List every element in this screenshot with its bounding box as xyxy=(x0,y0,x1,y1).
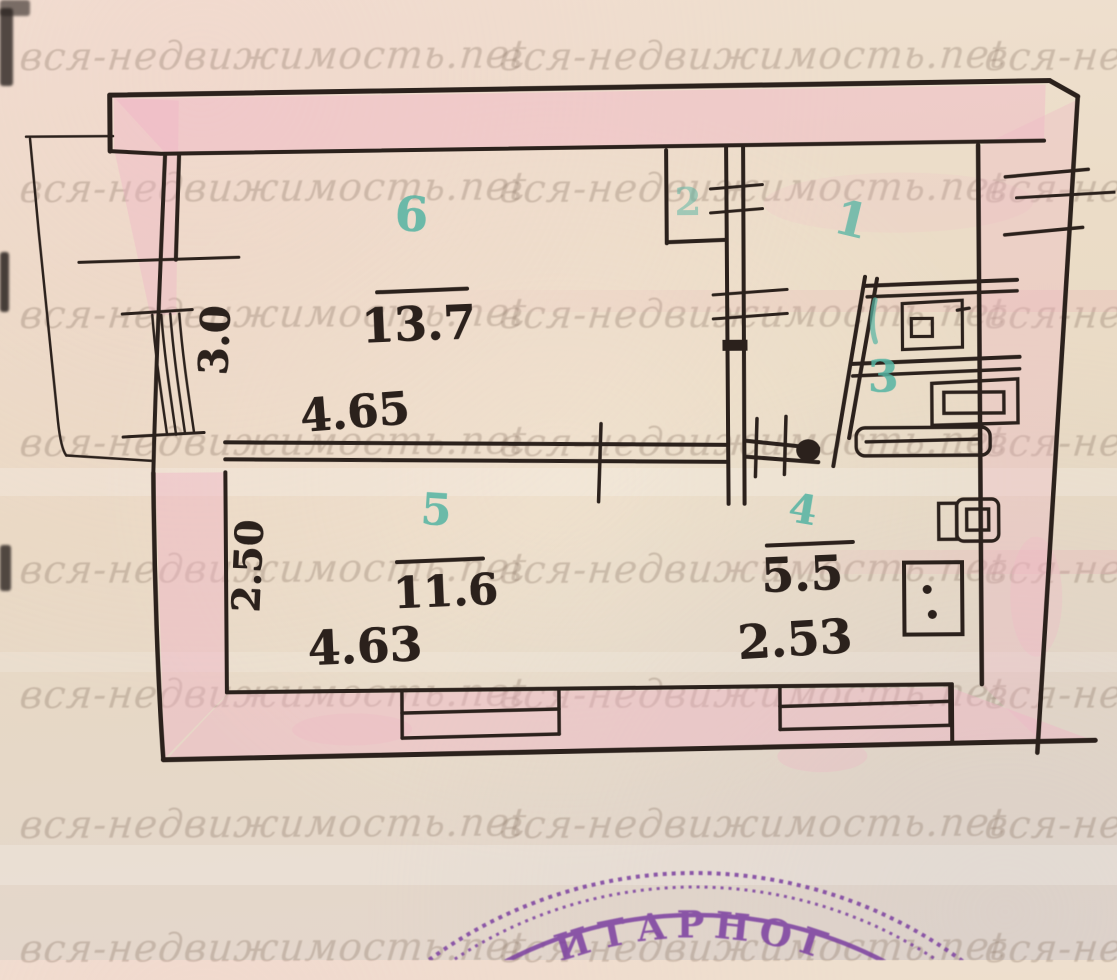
watermark-row: вся-недвижимость.net вся-недвижимость.ne… xyxy=(0,420,1117,474)
watermark-text: вся-недвижимость.net xyxy=(18,291,529,339)
watermark-text: вся-недвижимость.net xyxy=(983,33,1117,81)
watermark-text: вся-недвижимость.net xyxy=(18,801,529,849)
room-width-6: 4.65 xyxy=(298,385,411,438)
outer-walls xyxy=(78,80,1117,760)
watermark-text: вся-недвижимость.net xyxy=(983,925,1117,973)
watermark-text: вся-недвижимость.net xyxy=(983,671,1117,719)
watermark-layer: вся-недвижимость.net вся-недвижимость.ne… xyxy=(0,0,1117,960)
watermark-text: вся-недвижимость.net xyxy=(983,419,1117,467)
watermark-text: вся-недвижимость.net xyxy=(983,165,1117,213)
room-width-4: 2.53 xyxy=(736,613,853,667)
window-sill-line xyxy=(79,257,239,262)
paper-crease xyxy=(0,550,1117,574)
teal-mark xyxy=(872,300,875,342)
watermark-row: вся-недвижимость.net вся-недвижимость.ne… xyxy=(0,292,1117,346)
stamp-text: ИТАРНОГ xyxy=(549,903,841,960)
bathtub-icon xyxy=(856,379,1019,456)
room-area-4: 5.5 xyxy=(760,550,844,600)
room-width-5: 4.63 xyxy=(307,621,423,673)
room-number-5: 5 xyxy=(419,488,452,534)
balcony-window-glazing xyxy=(152,314,194,435)
floor-plan xyxy=(0,0,1117,964)
edge-smudge xyxy=(0,252,9,312)
watermark-text: вся-недвижимость.net xyxy=(498,291,1009,339)
room-depth-6: 3.0 xyxy=(194,305,237,376)
photo-artifacts-layer xyxy=(0,0,1117,960)
watermark-text: вся-недвижимость.net xyxy=(18,546,529,594)
room-number-3: 3 xyxy=(868,356,899,400)
closet-walls xyxy=(666,150,726,243)
bottom-window xyxy=(780,684,950,729)
room-area-6: 13.7 xyxy=(360,299,476,351)
stamp-visible-text: ИТАРНОГ xyxy=(549,903,841,960)
room-number-6: 6 xyxy=(393,190,429,239)
kitchen-door-jambs xyxy=(755,416,786,476)
watermark-text: вся-недвижимость.net xyxy=(983,801,1117,849)
room-number-1: 1 xyxy=(829,193,873,248)
watermark-row: вся-недвижимость.net вся-недвижимость.ne… xyxy=(0,166,1117,220)
balcony-outline xyxy=(26,136,152,462)
watermark-row: вся-недвижимость.net вся-недвижимость.ne… xyxy=(0,672,1117,726)
watermark-text: вся-недвижимость.net xyxy=(18,33,529,81)
watermark-row: вся-недвижимость.net вся-недвижимость.ne… xyxy=(0,926,1117,980)
paper-crease xyxy=(0,845,1117,885)
stamp-layer: ИТАРНОГ xyxy=(0,0,1117,960)
watermark-text: вся-недвижимость.net xyxy=(983,291,1117,339)
window-sill-line xyxy=(122,310,192,314)
watermark-text: вся-недвижимость.net xyxy=(498,801,1009,849)
watermark-text: вся-недвижимость.net xyxy=(18,671,529,719)
bathroom-sink-icon xyxy=(902,300,969,349)
plan-labels: 6 13.7 4.65 3.0 5 11.6 4.63 2.50 4 5.5 2… xyxy=(0,0,1117,964)
watermark-text: вся-недвижимость.net xyxy=(498,33,1009,81)
door-hinge-mark xyxy=(722,340,747,351)
watermark-row: вся-недвижимость.net вся-недвижимость.ne… xyxy=(0,547,1117,601)
watermark-text: вся-недвижимость.net xyxy=(498,165,1009,213)
room-number-2: 2 xyxy=(674,183,701,221)
pink-wall-highlights xyxy=(114,84,1091,777)
watermark-text: вся-недвижимость.net xyxy=(18,419,529,467)
room-number-4: 4 xyxy=(785,488,819,532)
edge-smudge xyxy=(0,545,11,591)
watermark-text: вся-недвижимость.net xyxy=(498,546,1009,594)
round-stamp: ИТАРНОГ xyxy=(245,873,1117,960)
window-sill-line xyxy=(123,432,204,437)
watermark-text: вся-недвижимость.net xyxy=(498,671,1009,719)
wall-junction-mark xyxy=(796,439,820,461)
entrance-door-opening xyxy=(1004,169,1088,235)
bathroom-walls xyxy=(832,276,1020,466)
exterior-landing-line xyxy=(1016,192,1115,198)
interior-walls xyxy=(223,146,820,507)
watermark-row: вся-недвижимость.net вся-недвижимость.ne… xyxy=(0,802,1117,856)
room-depth-5: 2.50 xyxy=(227,519,269,613)
stove-icon xyxy=(904,562,963,634)
watermark-text: вся-недвижимость.net xyxy=(498,925,1009,973)
door-opening-ticks xyxy=(710,184,787,319)
watermark-text: вся-недвижимость.net xyxy=(18,165,529,213)
watermark-text: вся-недвижимость.net xyxy=(18,925,529,973)
paper-crease xyxy=(0,652,1117,672)
watermark-text: вся-недвижимость.net xyxy=(983,546,1117,594)
bottom-window xyxy=(402,690,559,738)
edge-smudge xyxy=(0,0,30,16)
toilet-icon xyxy=(939,499,999,541)
watermark-text: вся-недвижимость.net xyxy=(498,419,1009,467)
room-area-5: 11.6 xyxy=(392,569,498,616)
edge-smudge xyxy=(0,8,13,86)
paper-crease xyxy=(0,290,1117,312)
paper-crease xyxy=(0,468,1117,496)
dimension-tick xyxy=(598,424,602,502)
watermark-row: вся-недвижимость.net вся-недвижимость.ne… xyxy=(0,34,1117,88)
area-fraction-lines xyxy=(377,286,853,562)
